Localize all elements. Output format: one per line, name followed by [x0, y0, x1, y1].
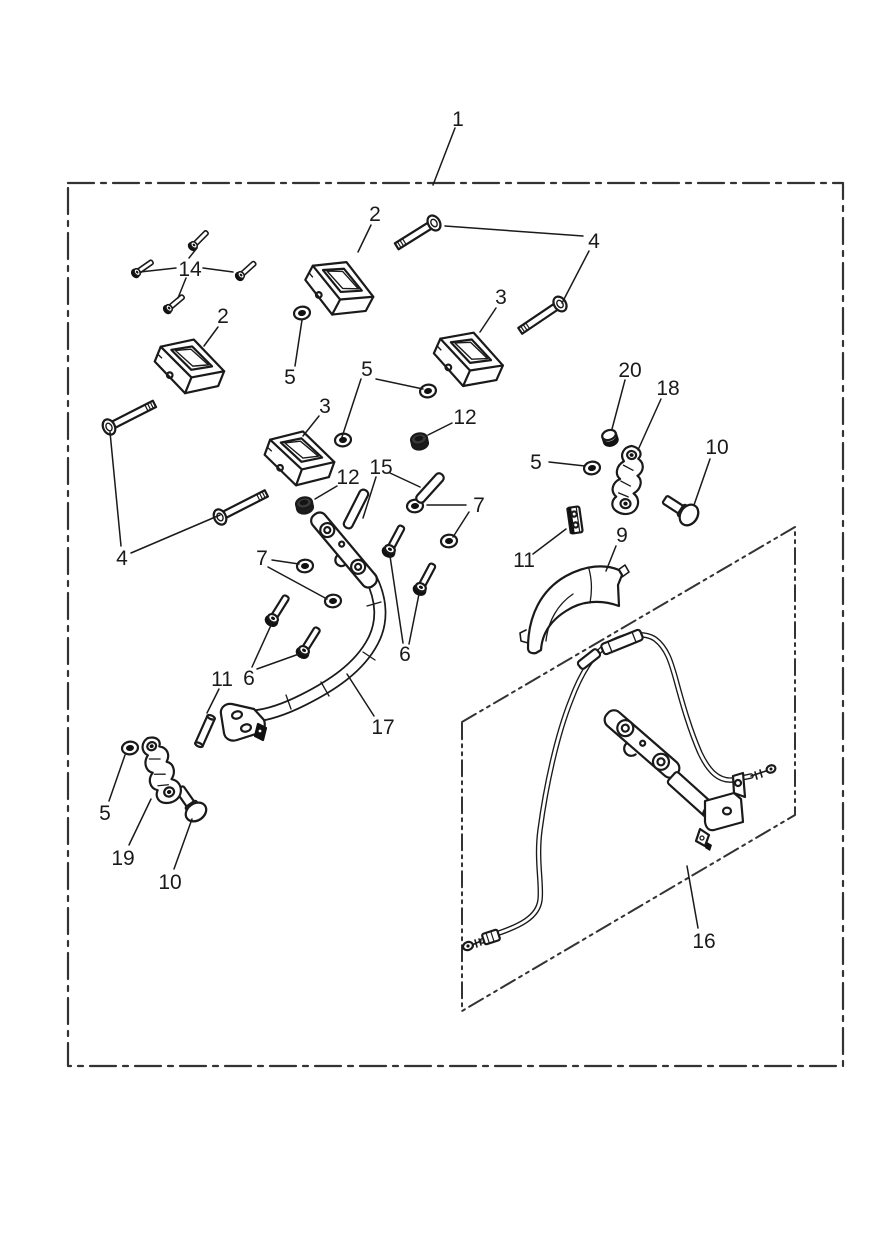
callout-5: 5 [284, 366, 296, 389]
part-6-screw [264, 593, 292, 628]
part-4-bolt [516, 294, 570, 337]
callout-6: 6 [243, 667, 255, 690]
cable-inner [482, 635, 751, 941]
part-5-nut [121, 741, 139, 756]
callout-7: 7 [473, 494, 485, 517]
parts-diagram-page: 1 2 2 3 3 4 4 5 5 5 5 6 6 7 7 9 10 10 11… [0, 0, 884, 1250]
cable-end-fitting-right [751, 764, 776, 779]
callout-12: 12 [336, 466, 359, 489]
part-2-mount-left [148, 329, 231, 404]
callout-19: 19 [111, 847, 134, 870]
callout-5: 5 [99, 802, 111, 825]
part-12-plug [410, 432, 429, 451]
part-7-nut [324, 594, 341, 608]
callout-2: 2 [369, 203, 381, 226]
callout-1: 1 [452, 108, 464, 131]
part-5-nut [293, 305, 311, 320]
part-3-mount-center [258, 422, 340, 495]
cable-outer [482, 635, 751, 941]
cable-end-fitting-left [462, 929, 500, 951]
part-15-pin [415, 472, 446, 505]
part-7-nut [296, 559, 313, 573]
part-16-cable-assembly [462, 629, 777, 951]
part-10-shoulder-bolt [659, 490, 702, 529]
callout-3: 3 [319, 395, 331, 418]
kit-boundary-box [68, 183, 843, 1066]
part-7-nut [440, 534, 457, 548]
callout-12: 12 [453, 406, 476, 429]
part-11-pin [195, 714, 216, 748]
part-4-bolt [100, 397, 158, 437]
cable-adjuster [600, 629, 643, 655]
part-14-screw [130, 258, 155, 279]
callout-11: 11 [513, 549, 535, 572]
callout-3: 3 [495, 286, 507, 309]
part-5-nut [583, 460, 601, 475]
cable-subkit-boundary-box [462, 527, 795, 1011]
part-5-nut [419, 383, 437, 399]
part-3-mount-right [427, 321, 511, 397]
callout-2: 2 [217, 305, 229, 328]
part-6-screw [381, 523, 407, 558]
callout-10: 10 [705, 436, 728, 459]
callout-14: 14 [178, 258, 202, 281]
callout-6: 6 [399, 643, 411, 666]
part-11-clip [567, 506, 583, 533]
part-12-plug [295, 496, 314, 515]
callout-11: 11 [211, 668, 233, 691]
callout-16: 16 [692, 930, 715, 953]
part-6-screw [412, 561, 438, 596]
callout-18: 18 [656, 377, 679, 400]
tube-mounting-bar [303, 510, 379, 595]
callout-7: 7 [256, 547, 268, 570]
callout-9: 9 [616, 524, 628, 547]
exploded-view-diagram: 1 2 2 3 3 4 4 5 5 5 5 6 6 7 7 9 10 10 11… [0, 0, 884, 1250]
callout-17: 17 [371, 716, 394, 739]
part-4-bolt [392, 213, 443, 253]
part-4-bolt [211, 486, 270, 526]
part-14-screw [234, 259, 258, 282]
callout-5: 5 [361, 358, 373, 381]
part-14-screw [162, 293, 186, 315]
part-19-lever [134, 733, 185, 807]
part-17-frame-tube [221, 510, 381, 741]
part-18-lever [610, 444, 645, 515]
callout-20: 20 [618, 359, 641, 382]
part-20-cap [601, 428, 619, 448]
callout-15: 15 [369, 456, 392, 479]
callout-4: 4 [116, 547, 128, 570]
callout-4: 4 [588, 230, 600, 253]
part-14-screw [187, 229, 210, 252]
callout-5: 5 [530, 451, 542, 474]
callout-10: 10 [158, 871, 181, 894]
